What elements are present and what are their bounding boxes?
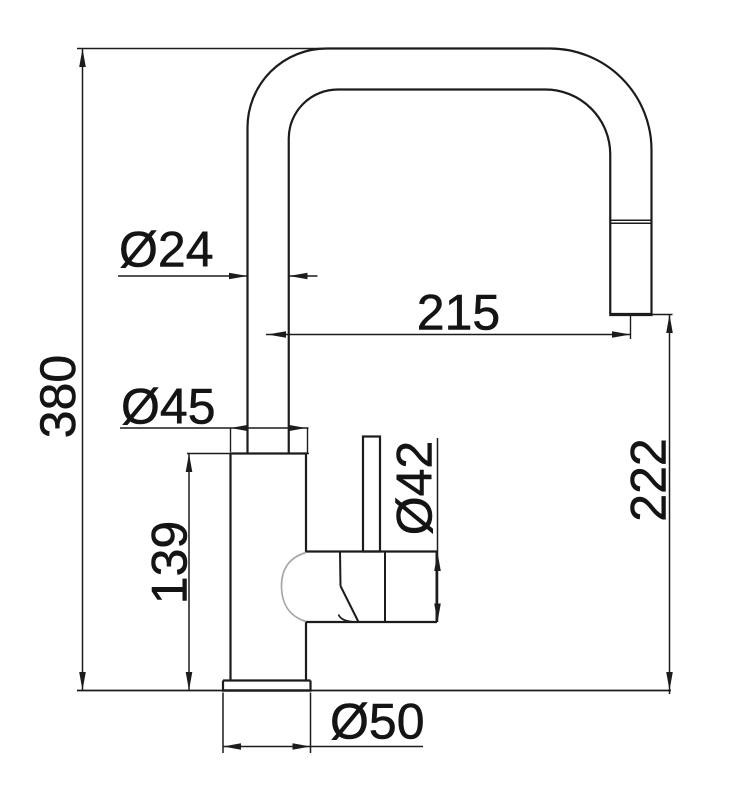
svg-text:Ø24: Ø24 xyxy=(119,222,214,278)
svg-text:139: 139 xyxy=(142,521,198,604)
svg-text:Ø50: Ø50 xyxy=(330,694,425,750)
svg-text:Ø45: Ø45 xyxy=(121,379,216,435)
svg-text:Ø42: Ø42 xyxy=(387,441,443,536)
svg-text:380: 380 xyxy=(30,355,86,438)
svg-text:222: 222 xyxy=(621,438,677,521)
svg-text:215: 215 xyxy=(417,285,500,341)
